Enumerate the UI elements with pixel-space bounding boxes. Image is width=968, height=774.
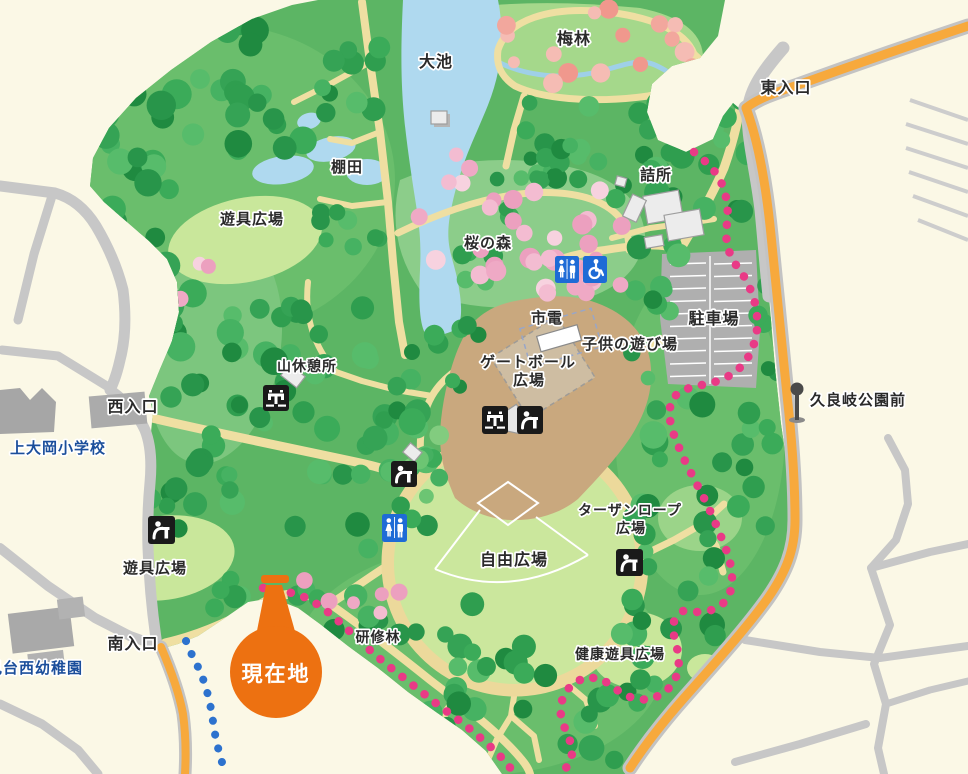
- tree: [212, 581, 230, 599]
- tree: [181, 373, 204, 396]
- tree: [273, 136, 297, 160]
- cherry-tree: [525, 253, 542, 270]
- tree: [239, 33, 263, 57]
- tree: [761, 361, 776, 376]
- tree: [490, 172, 505, 187]
- plum-tree: [633, 57, 648, 72]
- label-nishi-entrance: 西入口: [107, 397, 158, 416]
- tree: [611, 623, 633, 645]
- tree: [250, 299, 270, 319]
- tree: [652, 451, 668, 467]
- cherry-tree: [482, 199, 498, 215]
- tree: [589, 153, 607, 171]
- tree: [351, 465, 370, 484]
- tree: [186, 452, 211, 477]
- fountain-icon-southwest: [148, 516, 175, 544]
- tree: [367, 229, 384, 246]
- plum-tree: [543, 73, 563, 93]
- pond-hut: [431, 111, 450, 127]
- tree: [231, 396, 248, 413]
- tree: [408, 623, 425, 640]
- tree: [404, 344, 420, 360]
- tree: [429, 426, 449, 446]
- tree: [419, 489, 434, 504]
- label-tarzan-2: 広場: [616, 520, 646, 537]
- tree: [221, 467, 237, 483]
- plum-tree: [651, 15, 668, 32]
- label-school: 上大岡小学校: [10, 439, 106, 457]
- tree: [159, 179, 179, 199]
- label-kodomo-asobiba: 子供の遊び場: [582, 335, 678, 353]
- plum-tree: [546, 46, 562, 62]
- tree: [644, 290, 663, 309]
- tree: [736, 459, 754, 477]
- label-jiyu-hiroba: 自由広場: [480, 550, 548, 569]
- tree: [762, 433, 784, 455]
- tree: [738, 402, 761, 425]
- tree: [217, 319, 244, 346]
- fountain-icon-tarzan: [616, 549, 643, 576]
- tree: [514, 170, 529, 185]
- cherry-tree: [391, 584, 408, 601]
- tree: [147, 91, 176, 120]
- tree: [759, 419, 776, 436]
- label-kenko-yugu-hiroba: 健康遊具広場: [575, 646, 665, 663]
- cherry-tree: [426, 250, 446, 270]
- tree: [678, 581, 699, 602]
- tree: [630, 669, 651, 690]
- label-yama-kyukeijo: 山休憩所: [277, 358, 337, 375]
- label-tanada: 棚田: [331, 158, 363, 176]
- label-tarzan-1: ターザンロープ: [578, 503, 682, 519]
- cherry-tree: [613, 277, 629, 293]
- tree: [524, 152, 538, 166]
- plum-tree: [665, 31, 680, 46]
- restroom-icon-south: [382, 514, 407, 542]
- plum-tree: [615, 28, 630, 43]
- tree: [641, 371, 656, 386]
- tree: [333, 464, 353, 484]
- tree: [647, 400, 666, 419]
- tree: [640, 421, 668, 449]
- cherry-tree: [461, 160, 478, 177]
- label-gateball-2: 広場: [513, 371, 545, 389]
- plum-tree: [497, 16, 516, 35]
- tree: [159, 498, 175, 514]
- tree: [221, 481, 238, 498]
- tree: [712, 452, 732, 472]
- label-bairin: 梅林: [557, 29, 591, 48]
- cherry-tree: [321, 593, 338, 610]
- tree: [699, 566, 718, 585]
- tree: [225, 130, 253, 158]
- cherry-tree: [375, 587, 389, 601]
- tree: [606, 189, 625, 208]
- label-higashi-entrance: 東入口: [760, 78, 811, 97]
- tree: [358, 539, 378, 559]
- tree: [134, 169, 161, 196]
- tree: [323, 50, 345, 72]
- tree: [699, 530, 716, 547]
- cherry-tree: [411, 208, 428, 225]
- tree: [183, 492, 207, 516]
- tree: [182, 123, 204, 145]
- tree: [605, 751, 623, 769]
- tree: [291, 299, 312, 320]
- plum-tree: [668, 17, 683, 32]
- tree: [633, 612, 651, 630]
- tree: [160, 386, 181, 407]
- tree: [562, 138, 578, 154]
- label-bus-stop: 久良岐公園前: [810, 391, 906, 409]
- tree: [345, 238, 362, 255]
- cherry-tree: [591, 181, 609, 199]
- label-yugu-hiroba-south: 遊具広場: [123, 559, 187, 577]
- cherry-tree: [441, 174, 457, 190]
- tree: [548, 168, 563, 183]
- tree: [248, 94, 266, 112]
- tree: [351, 296, 374, 319]
- tree: [263, 108, 285, 130]
- cherry-tree: [572, 214, 592, 234]
- label-oike: 大池: [419, 52, 453, 71]
- tree: [352, 342, 378, 368]
- tree: [445, 373, 460, 388]
- tree: [464, 644, 481, 661]
- plum-tree: [591, 63, 610, 82]
- tree: [314, 79, 331, 96]
- label-kindergarten: 見台西幼稚園: [0, 659, 83, 677]
- current-location-label: 現在地: [242, 662, 311, 686]
- tree: [458, 316, 477, 335]
- cherry-tree: [516, 225, 533, 242]
- tree: [346, 92, 368, 114]
- tree: [756, 516, 775, 535]
- cherry-tree: [547, 230, 562, 245]
- label-shiden: 市電: [531, 309, 563, 327]
- label-minami-entrance: 南入口: [107, 634, 158, 653]
- tree: [388, 377, 407, 396]
- tree: [449, 658, 468, 677]
- tree: [534, 664, 557, 687]
- label-sakura-no-mori: 桜の森: [464, 234, 512, 252]
- tree: [522, 95, 538, 111]
- tree: [292, 401, 314, 423]
- tree: [579, 96, 600, 117]
- cherry-tree: [525, 183, 543, 201]
- tree: [165, 477, 188, 500]
- tree: [581, 706, 598, 723]
- tree: [477, 657, 496, 676]
- fountain-icon-center: [391, 461, 417, 487]
- tree: [517, 121, 535, 139]
- tree: [667, 244, 691, 268]
- label-chushajo: 駐車場: [688, 309, 739, 328]
- tree: [625, 280, 645, 300]
- label-kenshurin: 研修林: [356, 629, 401, 646]
- cherry-tree: [374, 606, 388, 620]
- plum-tree: [508, 56, 520, 68]
- tree: [703, 547, 725, 569]
- tree: [202, 425, 221, 444]
- fountain-icon-gateball: [517, 406, 543, 434]
- tree: [742, 476, 764, 498]
- tree: [307, 460, 332, 485]
- label-gateball-1: ゲートボール: [480, 353, 576, 371]
- cherry-tree: [296, 572, 313, 589]
- cherry-tree: [347, 596, 360, 609]
- tree: [345, 512, 370, 537]
- tree: [569, 170, 587, 188]
- plum-tree: [588, 6, 601, 19]
- tree: [689, 392, 715, 418]
- tree: [225, 102, 250, 127]
- tree: [368, 37, 390, 59]
- cherry-tree: [578, 284, 595, 301]
- tree: [363, 426, 388, 451]
- cherry-tree: [486, 261, 506, 281]
- map-canvas: 現在地 大池 梅林 東入口 棚田 遊具広場 桜の森 詰所 市電 子供の遊び場 駐…: [0, 0, 968, 774]
- tree: [424, 325, 445, 346]
- cherry-tree: [201, 259, 216, 274]
- tree: [316, 103, 335, 122]
- tree: [128, 148, 148, 168]
- tree: [730, 200, 753, 223]
- tree: [312, 204, 330, 222]
- tree: [460, 592, 484, 616]
- tree: [399, 408, 426, 435]
- tree: [430, 469, 448, 487]
- tree: [314, 416, 340, 442]
- cherry-tree: [449, 148, 463, 162]
- tree: [621, 589, 643, 611]
- wheelchair-icon: [583, 256, 607, 283]
- cherry-tree: [539, 284, 556, 301]
- tree: [727, 495, 750, 518]
- restroom-icon: [555, 256, 579, 283]
- park-map: 現在地 大池 梅林 東入口 棚田 遊具広場 桜の森 詰所 市電 子供の遊び場 駐…: [0, 0, 968, 774]
- tree: [222, 343, 242, 363]
- tree: [190, 69, 210, 89]
- tree: [285, 516, 306, 537]
- tree: [205, 599, 224, 618]
- cherry-tree: [613, 217, 631, 235]
- tree: [329, 204, 345, 220]
- tree: [579, 735, 605, 761]
- tree: [319, 232, 334, 247]
- tree: [310, 325, 328, 343]
- plum-tree: [599, 0, 618, 19]
- cherry-tree: [579, 235, 597, 253]
- tree: [514, 700, 533, 719]
- label-tsumesho: 詰所: [640, 166, 672, 184]
- tree: [514, 663, 535, 684]
- cherry-tree: [504, 190, 523, 209]
- faucet-icon-center: [482, 406, 508, 434]
- faucet-icon-rest-area: [263, 385, 289, 411]
- label-yugu-hiroba-north: 遊具広場: [220, 210, 284, 228]
